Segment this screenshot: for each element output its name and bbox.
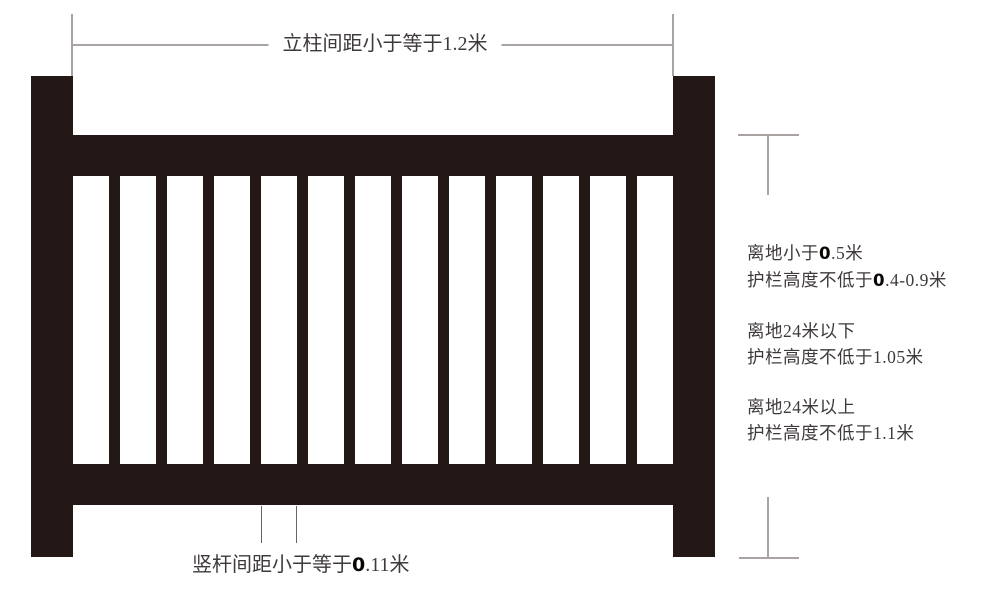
height-note-2-line-2: 护栏高度不低于1.05米 <box>747 344 947 370</box>
vertical-bar <box>532 176 543 464</box>
height-note-1: 离地小于0.5米 护栏高度不低于0.4-0.9米 <box>747 240 947 294</box>
vertical-bar <box>438 176 449 464</box>
text-segment: 离地24米以上 <box>747 397 856 417</box>
right-post <box>673 76 715 557</box>
height-note-3-line-1: 离地24米以上 <box>747 394 947 420</box>
text-segment: 立柱间距小于等于1.2米 <box>283 33 488 55</box>
text-segment: .11米 <box>365 554 409 576</box>
bar-spacing-leader-right <box>296 506 297 543</box>
text-segment: 离地小于 <box>747 243 819 263</box>
height-marker-bottom-horizontal <box>739 557 799 559</box>
vertical-bar <box>156 176 167 464</box>
top-rail <box>73 135 673 176</box>
height-note-3-line-2: 护栏高度不低于1.1米 <box>747 420 947 446</box>
text-segment: .5米 <box>831 243 863 263</box>
left-post <box>31 76 73 557</box>
vertical-bar <box>297 176 308 464</box>
bar-spacing-label: 竖杆间距小于等于0.11米 <box>192 553 410 577</box>
text-segment: 竖杆间距小于等于 <box>192 554 352 576</box>
bold-number-segment: 0 <box>819 244 831 263</box>
text-segment: 离地24米以下 <box>747 321 856 341</box>
vertical-bar <box>626 176 637 464</box>
height-note-2: 离地24米以下 护栏高度不低于1.05米 <box>747 318 947 370</box>
vertical-bar <box>391 176 402 464</box>
railing-diagram: 立柱间距小于等于1.2米 离地小于0.5米 护栏高度不低于0.4-0.9米 离地… <box>0 0 999 598</box>
height-note-1-line-2: 护栏高度不低于0.4-0.9米 <box>747 267 947 294</box>
height-note-3: 离地24米以上 护栏高度不低于1.1米 <box>747 394 947 446</box>
bold-number-segment: 0 <box>873 271 885 290</box>
vertical-bar <box>109 176 120 464</box>
vertical-bars <box>73 176 673 464</box>
vertical-bar <box>203 176 214 464</box>
vertical-bar <box>344 176 355 464</box>
height-note-1-line-1: 离地小于0.5米 <box>747 240 947 267</box>
vertical-bar <box>485 176 496 464</box>
text-segment: 护栏高度不低于1.1米 <box>747 423 914 443</box>
vertical-bar <box>250 176 261 464</box>
post-spacing-label: 立柱间距小于等于1.2米 <box>269 33 502 56</box>
height-marker-top-vertical <box>767 134 769 195</box>
vertical-bar <box>579 176 590 464</box>
bold-number-segment: 0 <box>352 554 365 576</box>
height-notes: 离地小于0.5米 护栏高度不低于0.4-0.9米 离地24米以下 护栏高度不低于… <box>747 240 947 470</box>
height-note-2-line-1: 离地24米以下 <box>747 318 947 344</box>
bottom-rail <box>73 464 673 505</box>
height-marker-bottom-vertical <box>767 497 769 558</box>
text-segment: 护栏高度不低于 <box>747 270 873 290</box>
text-segment: .4-0.9米 <box>885 270 947 290</box>
bar-spacing-leader-left <box>261 506 262 543</box>
text-segment: 护栏高度不低于1.05米 <box>747 347 924 367</box>
